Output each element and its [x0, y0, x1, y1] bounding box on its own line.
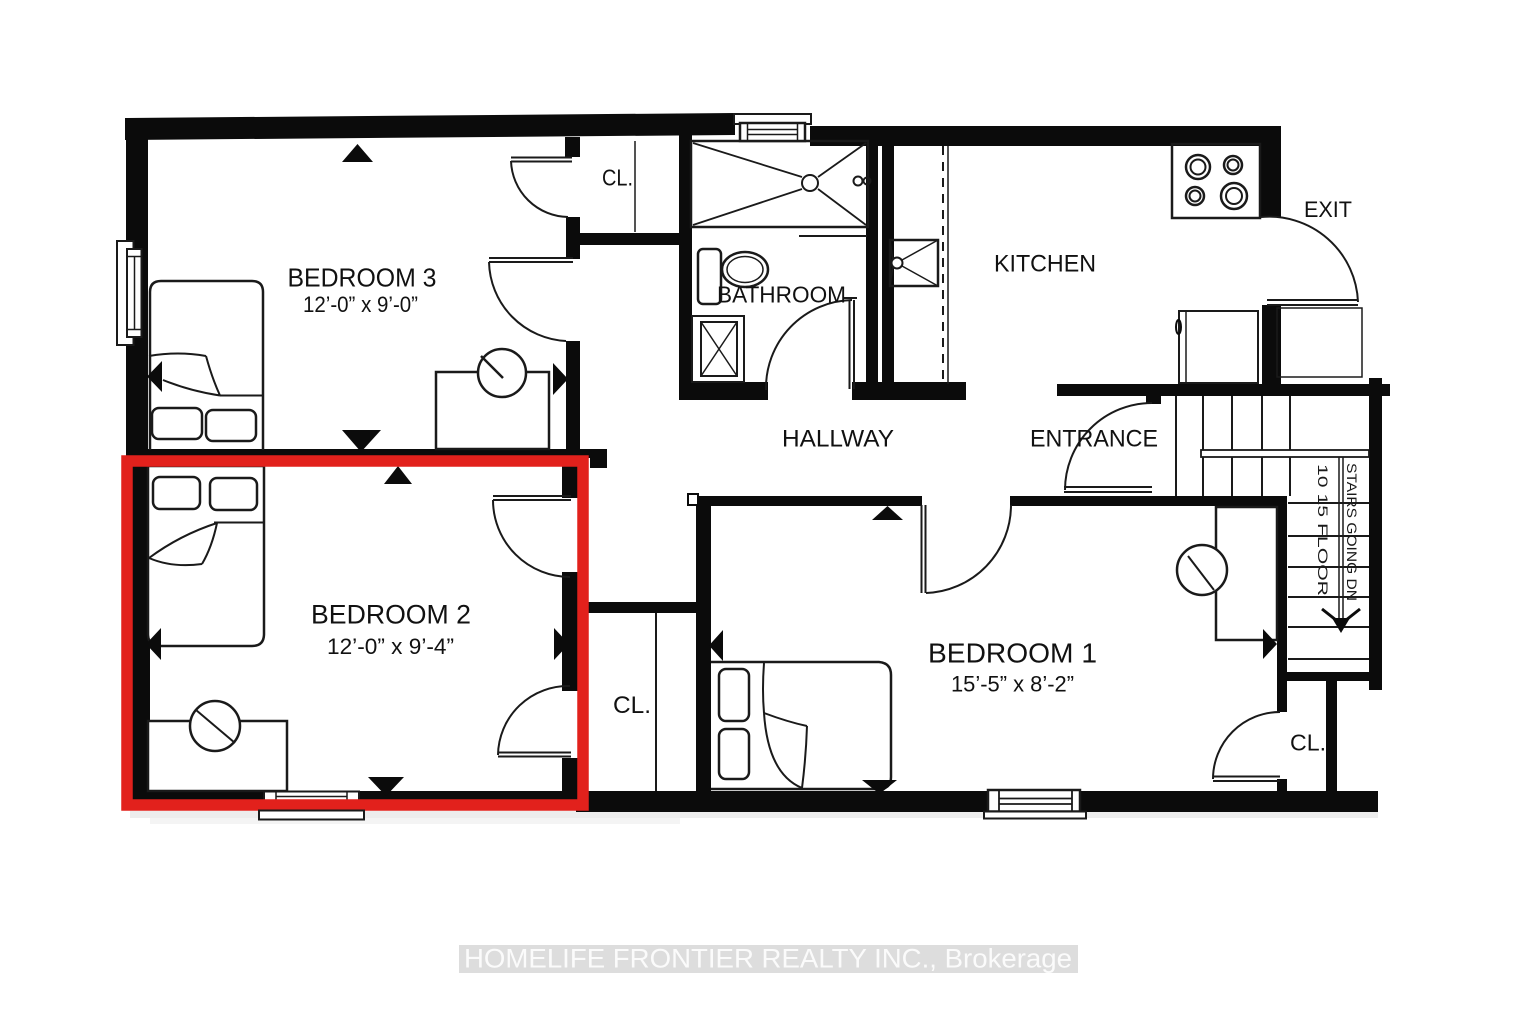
svg-text:ENTRANCE: ENTRANCE [1030, 426, 1158, 453]
svg-text:HALLWAY: HALLWAY [782, 426, 894, 453]
svg-text:KITCHEN: KITCHEN [994, 251, 1096, 278]
svg-text:BEDROOM 3: BEDROOM 3 [288, 263, 437, 293]
svg-text:BATHROOM: BATHROOM [717, 282, 846, 308]
svg-text:12’-0” x 9’-0”: 12’-0” x 9’-0” [303, 292, 418, 317]
svg-text:STAIRS GOING DN: STAIRS GOING DN [1344, 463, 1360, 601]
svg-text:CL.: CL. [1290, 730, 1326, 756]
svg-text:HOMELIFE FRONTIER REALTY INC.,: HOMELIFE FRONTIER REALTY INC., Brokerage [464, 944, 1072, 974]
svg-text:BEDROOM 2: BEDROOM 2 [311, 600, 471, 630]
svg-text:BEDROOM 1: BEDROOM 1 [928, 638, 1097, 669]
svg-text:EXIT: EXIT [1304, 197, 1352, 222]
svg-text:CL.: CL. [602, 165, 633, 191]
svg-text:CL.: CL. [613, 692, 651, 719]
svg-text:10 15 FLOOR: 10 15 FLOOR [1315, 464, 1331, 596]
svg-text:15’-5” x 8’-2”: 15’-5” x 8’-2” [951, 672, 1074, 697]
svg-text:12’-0” x 9’-4”: 12’-0” x 9’-4” [327, 634, 454, 659]
